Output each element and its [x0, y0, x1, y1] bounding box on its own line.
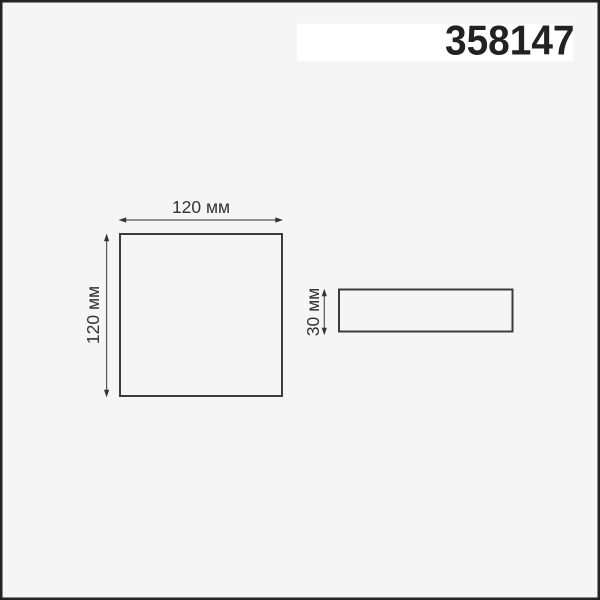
svg-text:120 мм: 120 мм: [172, 197, 230, 217]
svg-text:358147: 358147: [445, 17, 575, 64]
svg-text:30 мм: 30 мм: [303, 288, 323, 336]
svg-text:120 мм: 120 мм: [83, 286, 103, 344]
